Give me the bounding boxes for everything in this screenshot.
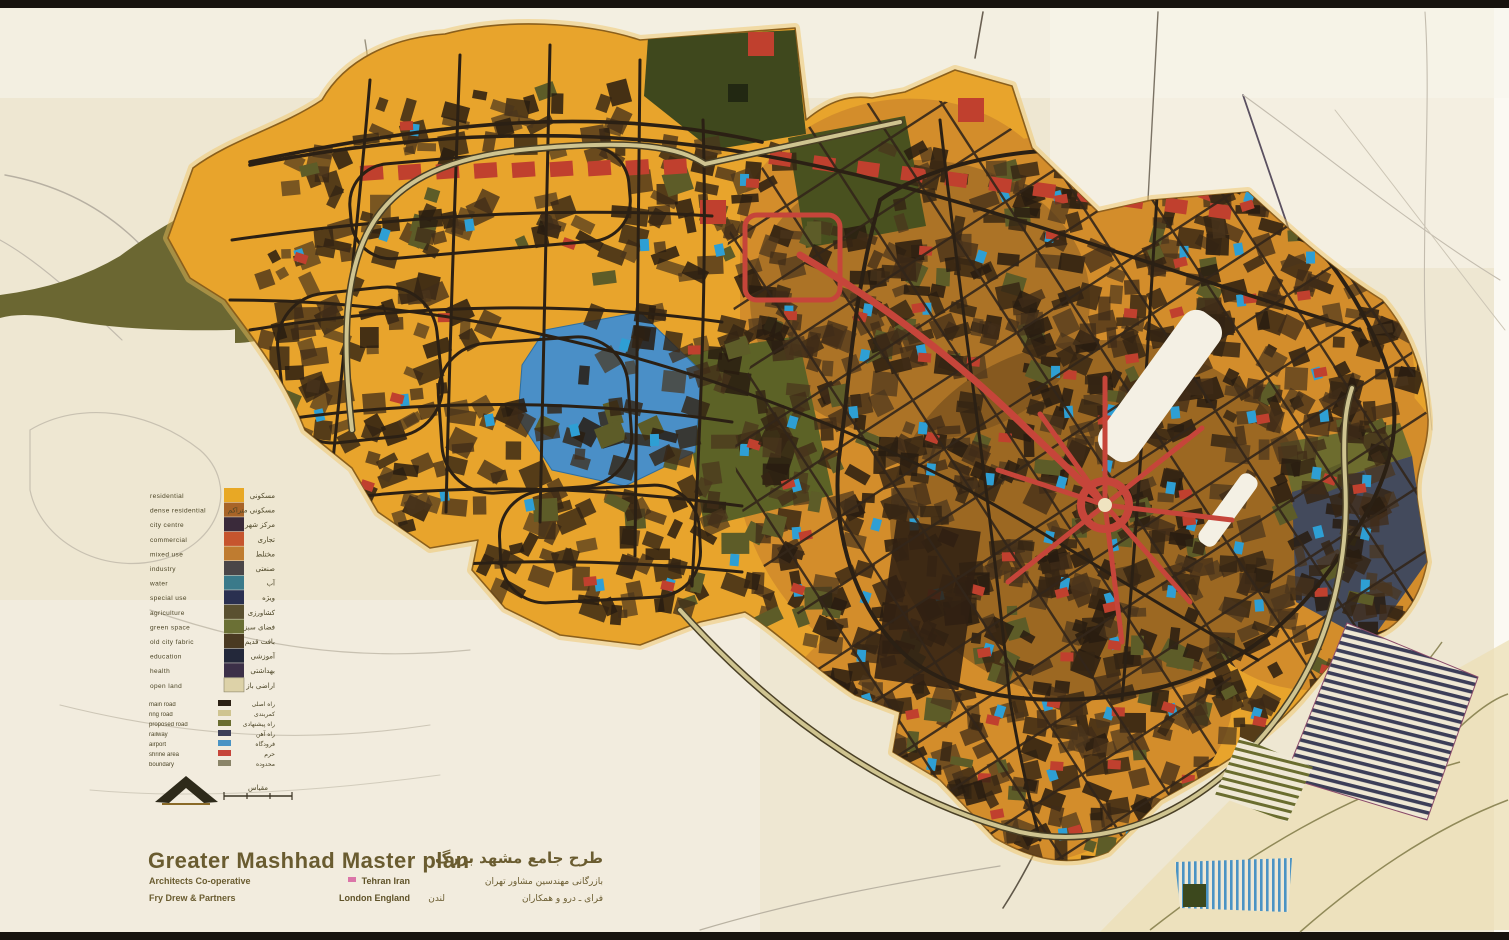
- map-title: Greater Mashhad Master plan: [148, 848, 470, 873]
- legend-label-fa: تجاری: [258, 536, 276, 544]
- legend-label-fa: مسکونی متراکم: [228, 507, 275, 515]
- legend-label-en: city centre: [150, 522, 184, 529]
- legend-label-en: dense residential: [150, 508, 206, 515]
- legend-label-en: old city fabric: [150, 639, 194, 646]
- legend-swatch: [224, 634, 244, 648]
- legend-swatch: [224, 649, 244, 663]
- legend-label-en: health: [150, 668, 170, 675]
- legend-swatch: [224, 532, 244, 546]
- legend-swatch: [224, 488, 244, 502]
- legend-swatch: [224, 605, 244, 619]
- legend-swatch: [218, 710, 231, 716]
- legend-label-fa: ویژه: [262, 594, 275, 602]
- legend-label-fa: محدوده: [256, 761, 275, 768]
- legend-label-fa: راه آهن: [256, 729, 275, 738]
- legend-swatch: [218, 700, 231, 706]
- legend-swatch: [218, 750, 231, 756]
- legend-label-fa: بهداشتی: [250, 667, 275, 675]
- scanned-map-page: { "map": { "name": "Greater Mashhad Mast…: [0, 0, 1509, 940]
- legend-label-fa: آموزشی: [251, 652, 276, 661]
- legend-swatch: [224, 590, 244, 604]
- legend-label-en: agriculture: [150, 610, 185, 617]
- legend-label-fa: حرم: [264, 751, 275, 758]
- legend-label-fa: مختلط: [256, 550, 276, 558]
- photo-edge-bottom: [0, 932, 1509, 940]
- legend-label-fa: فرودگاه: [255, 740, 275, 748]
- legend-swatch: [224, 561, 244, 575]
- credit-tehran: Tehran Iran: [362, 876, 410, 886]
- legend-swatch: [218, 730, 231, 736]
- legend-label-fa: کشاورزی: [248, 609, 276, 617]
- credit-frydrew: Fry Drew & Partners: [149, 893, 236, 903]
- legend-label-fa: مسکونی: [250, 492, 276, 500]
- legend-label-en: proposed road: [149, 722, 188, 728]
- legend-label-en: main road: [149, 702, 176, 708]
- legend-label-en: education: [150, 654, 182, 661]
- fa-credit-london: لندن: [428, 894, 445, 904]
- legend-label-fa: آب: [266, 579, 276, 588]
- legend-label-en: green space: [150, 624, 190, 631]
- legend-label-en: residential: [150, 493, 184, 500]
- legend-label-fa: راه اصلی: [252, 701, 275, 708]
- legend-swatch: [218, 740, 231, 746]
- legend-label-fa: صنعتی: [256, 565, 275, 573]
- photo-edge-top: [0, 0, 1509, 8]
- legend-label-fa: کمربندی: [254, 711, 275, 718]
- legend-label-fa: راه پیشنهادی: [243, 721, 275, 728]
- legend-label-fa: اراضی باز: [245, 682, 275, 690]
- master-plan-map: residentialمسکونیdense residentialمسکونی…: [0, 0, 1509, 940]
- legend-swatch: [224, 546, 244, 560]
- legend-label-en: boundary: [149, 762, 174, 768]
- legend-label-en: industry: [150, 566, 176, 573]
- fa-credit-2: فرای ـ درو و همکاران: [522, 894, 603, 904]
- legend-label-en: special use: [150, 595, 187, 602]
- scale-label: مقیاس: [248, 784, 268, 792]
- legend-swatch: [224, 678, 244, 692]
- legend-swatch: [218, 760, 231, 766]
- fa-credit-1: بازرگانی مهندسین مشاور تهران: [485, 875, 603, 887]
- legend-label-en: railway: [149, 732, 168, 738]
- legend-label-en: shrine area: [149, 752, 180, 758]
- legend-swatch: [218, 720, 231, 726]
- legend-label-fa: فضای سبز: [243, 623, 275, 631]
- credit-london: London England: [339, 893, 410, 903]
- legend-label-en: ring road: [149, 712, 173, 718]
- legend-swatch: [224, 517, 244, 531]
- legend-label-en: commercial: [150, 537, 187, 544]
- legend-label-en: mixed use: [150, 551, 183, 558]
- legend-label-en: water: [149, 581, 168, 588]
- legend-swatch: [224, 663, 244, 677]
- legend-label-en: open land: [150, 683, 182, 690]
- pink-mark: [348, 877, 356, 882]
- legend-swatch: [224, 576, 244, 590]
- legend-label-en: airport: [149, 742, 166, 748]
- legend-swatch: [224, 619, 244, 633]
- credit-architects: Architects Co-operative: [149, 876, 251, 886]
- legend-label-fa: بافت قدیم: [245, 638, 275, 646]
- legend-label-fa: مرکز شهر: [244, 521, 275, 529]
- fa-title: طرح جامع مشهد بزرگ: [435, 849, 603, 867]
